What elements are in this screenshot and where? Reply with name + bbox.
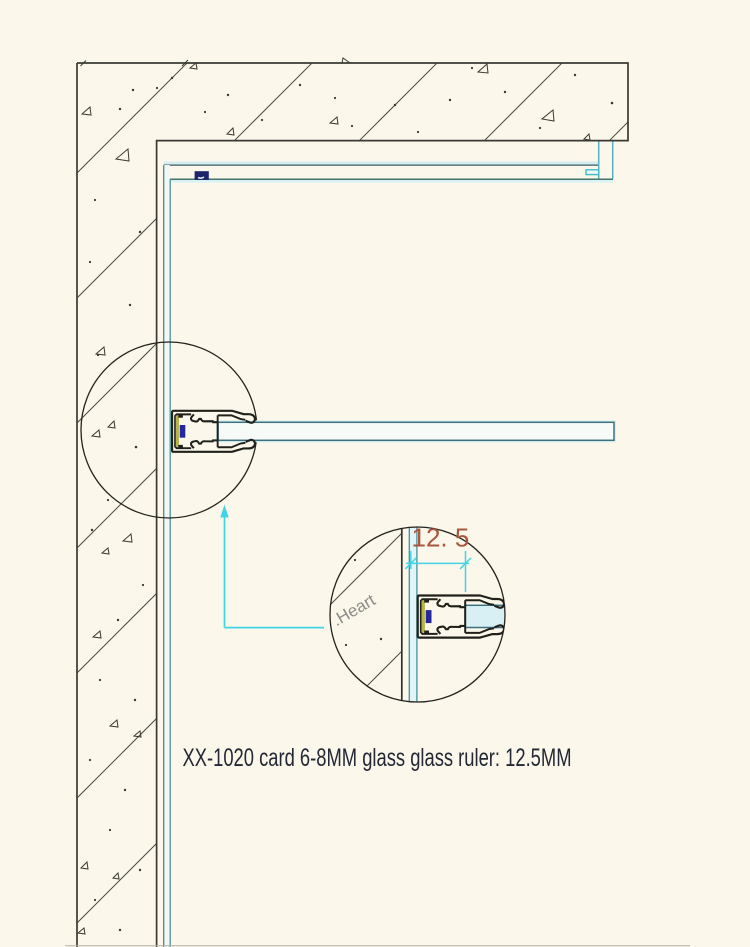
svg-text:XX-1020 card 6-8MM glass glass: XX-1020 card 6-8MM glass glass ruler: 12… <box>183 744 572 772</box>
svg-text:12. 5: 12. 5 <box>412 523 470 553</box>
